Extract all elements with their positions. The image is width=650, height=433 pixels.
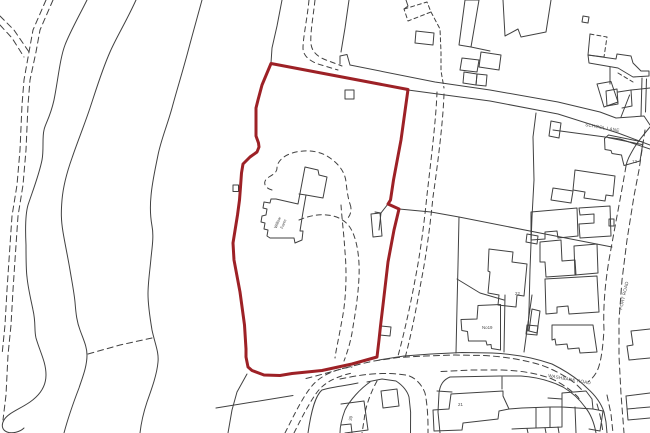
svg-text:No19: No19 — [482, 325, 493, 330]
svg-text:21: 21 — [458, 402, 463, 407]
svg-text:22: 22 — [515, 291, 520, 296]
svg-text:12: 12 — [632, 159, 637, 164]
